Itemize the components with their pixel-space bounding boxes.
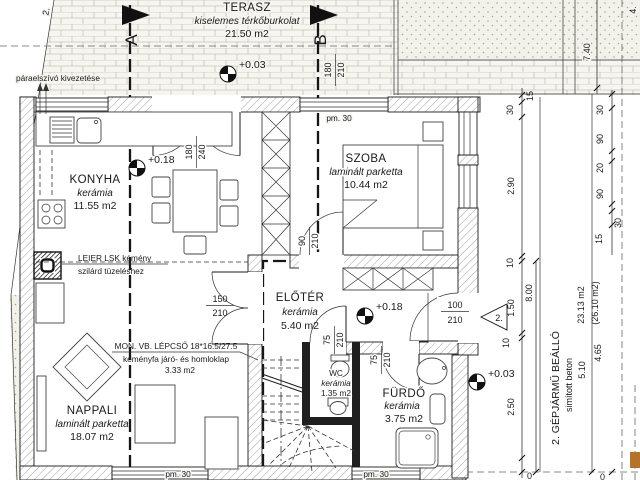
svg-text:100: 100 xyxy=(447,300,462,310)
eloter-label: ELŐTÉR kerámia 5.40 m2 xyxy=(276,290,324,332)
svg-text:5.40 m2: 5.40 m2 xyxy=(281,320,319,332)
section-letter-a: A xyxy=(122,34,141,46)
washbasin xyxy=(417,358,447,384)
svg-text:NAPPALI: NAPPALI xyxy=(67,405,118,417)
dim-chain-a-4: 1.50 xyxy=(506,299,516,317)
svg-text:2. GÉPJÁRMŰ BEÁLLÓ: 2. GÉPJÁRMŰ BEÁLLÓ xyxy=(548,331,562,445)
svg-text:210: 210 xyxy=(212,308,227,318)
parapet-label-nappali: pm. 30 xyxy=(165,469,191,479)
svg-text:180: 180 xyxy=(184,144,194,159)
parapet-label-lepcso: pm. 30 xyxy=(363,469,389,479)
dim-bottom-partial-2: 0 xyxy=(600,472,605,480)
svg-text:KONYHA: KONYHA xyxy=(70,174,121,186)
svg-text:3.75 m2: 3.75 m2 xyxy=(385,413,423,425)
nightstand-2 xyxy=(423,231,443,250)
dim-800: 8.00 xyxy=(524,284,534,302)
svg-text:210: 210 xyxy=(335,332,345,347)
dim-chain-b-1: 90 xyxy=(595,134,605,144)
svg-text:21.50 m2: 21.50 m2 xyxy=(225,28,269,40)
svg-text:(26.10 m2): (26.10 m2) xyxy=(590,281,600,325)
svg-text:keményfa járó- és homloklap: keményfa járó- és homloklap xyxy=(123,354,229,364)
svg-text:75: 75 xyxy=(322,335,332,345)
dim-chain-b-3: 90 xyxy=(595,189,605,199)
svg-text:ELŐTÉR: ELŐTÉR xyxy=(276,290,324,304)
svg-text:kerámia: kerámia xyxy=(384,401,420,412)
svg-text:laminált parketta: laminált parketta xyxy=(55,419,129,430)
nightstand-1 xyxy=(423,122,443,141)
dim-510: 5.10 xyxy=(577,361,587,379)
entry-marker: 2. xyxy=(481,304,507,330)
entry-triangle-icon xyxy=(481,304,507,330)
dim-chain-b-5: 30 xyxy=(613,218,623,228)
nappali-window xyxy=(112,467,208,479)
svg-text:TERASZ: TERASZ xyxy=(223,2,271,14)
svg-text:23.13 m2: 23.13 m2 xyxy=(576,286,586,324)
dim-465: 4.65 xyxy=(593,344,603,362)
svg-text:laminált parketta: laminált parketta xyxy=(329,167,403,178)
dim-chain-a-1: 30 xyxy=(505,105,515,115)
svg-text:szilárd tüzeléshez: szilárd tüzeléshez xyxy=(78,266,144,276)
svg-text:2.: 2. xyxy=(495,313,503,323)
shower-tray xyxy=(396,428,438,468)
svg-text:3.33 m2: 3.33 m2 xyxy=(165,365,195,375)
svg-text:kerámia: kerámia xyxy=(77,188,113,199)
furdo-label: FÜRDŐ kerámia 3.75 m2 xyxy=(383,386,426,425)
svg-text:240: 240 xyxy=(197,144,207,159)
svg-text:LEIER LSK kémény: LEIER LSK kémény xyxy=(78,253,152,263)
level-konyha: +0.18 xyxy=(148,154,175,166)
radiator-furdo xyxy=(430,394,445,424)
svg-text:FÜRDŐ: FÜRDŐ xyxy=(383,386,426,400)
svg-text:11.55 m2: 11.55 m2 xyxy=(74,200,117,212)
gravel-area-top-right xyxy=(398,0,640,60)
svg-text:210: 210 xyxy=(447,315,462,325)
dim-chain-a-0: 15 xyxy=(525,91,535,101)
paving-band-right xyxy=(398,60,640,95)
svg-text:MON. VB. LÉPCSŐ 18*16.5/27.5: MON. VB. LÉPCSŐ 18*16.5/27.5 xyxy=(115,341,238,351)
section-letter-b: B xyxy=(311,34,330,45)
dim-chain-b-4: 15 xyxy=(594,234,604,244)
svg-text:180: 180 xyxy=(323,62,333,77)
dim-chain-b-2: 20 xyxy=(595,163,605,173)
szoba-window-1 xyxy=(459,112,477,155)
lepcso-note: MON. VB. LÉPCSŐ 18*16.5/27.5 keményfa já… xyxy=(112,341,258,375)
wardrobe-vertical xyxy=(262,112,290,255)
dining-set xyxy=(152,170,238,254)
dim-bottom-partial-1: 0 xyxy=(527,471,532,480)
level-eloter: +0.18 xyxy=(376,301,403,313)
svg-text:10.44 m2: 10.44 m2 xyxy=(344,179,388,191)
svg-text:90: 90 xyxy=(297,236,307,246)
svg-text:kerámia: kerámia xyxy=(321,378,351,388)
svg-text:SZOBA: SZOBA xyxy=(346,153,387,165)
svg-text:1.35 m2: 1.35 m2 xyxy=(321,388,351,398)
svg-text:150: 150 xyxy=(212,294,227,304)
dim-top-right-partial: 4. xyxy=(628,6,638,14)
rug xyxy=(53,333,121,401)
stove xyxy=(38,200,65,228)
level-marker-carport: +0.03 xyxy=(469,368,515,390)
dim-740: 7.40 xyxy=(582,43,592,61)
radiator-nappali xyxy=(37,376,46,451)
svg-text:kerámia: kerámia xyxy=(282,307,318,318)
kitchen-cabinet xyxy=(36,283,64,323)
dim-chain-b-0: 30 xyxy=(595,105,605,115)
door-label-entry: 100 210 xyxy=(437,297,474,327)
konyha-label: KONYHA kerámia 11.55 m2 xyxy=(70,174,121,212)
konyha-window xyxy=(36,98,108,111)
szoba-window-2 xyxy=(459,165,477,208)
svg-text:75: 75 xyxy=(369,355,379,365)
dim-chain-a-2: 2.90 xyxy=(506,177,516,195)
terasz-window xyxy=(300,98,388,111)
svg-text:kiselemes térkőburkolat: kiselemes térkőburkolat xyxy=(194,16,300,27)
paraelszivo-note: páraelszívó kivezetése xyxy=(16,73,100,83)
svg-text:simított beton: simított beton xyxy=(564,358,574,412)
dim-chain-a-6: 2.50 xyxy=(506,398,516,416)
dim-chain-a-3: 10 xyxy=(505,258,515,268)
svg-text:210: 210 xyxy=(336,62,346,77)
level-marker-eloter: +0.18 xyxy=(357,301,403,324)
armchair xyxy=(135,385,175,443)
level-carport: +0.03 xyxy=(488,368,515,380)
floor-plan-page: A B xyxy=(0,0,640,480)
svg-text:18.07 m2: 18.07 m2 xyxy=(70,431,114,443)
kemeny-block xyxy=(34,252,61,279)
survey-marker xyxy=(630,452,640,468)
nappali-label: NAPPALI laminált parketta 18.07 m2 xyxy=(55,405,129,443)
dim-chain-a-5: 10 xyxy=(501,338,511,348)
kemeny-note: LEIER LSK kémény szilárd tüzeléshez xyxy=(62,253,168,276)
wardrobe-horizontal xyxy=(343,268,433,290)
parapet-label-top: pm. 30 xyxy=(326,113,352,123)
level-marker-konyha: +0.18 xyxy=(129,154,175,176)
wc-basin xyxy=(328,398,348,415)
level-terasz: +0.03 xyxy=(239,59,266,71)
svg-text:WC: WC xyxy=(329,368,343,378)
svg-text:210: 210 xyxy=(310,233,320,248)
door-label-eloter: 150 210 xyxy=(206,294,234,318)
svg-text:210: 210 xyxy=(382,352,392,367)
sofa xyxy=(205,417,238,469)
floor-plan-drawing: A B xyxy=(0,0,640,480)
